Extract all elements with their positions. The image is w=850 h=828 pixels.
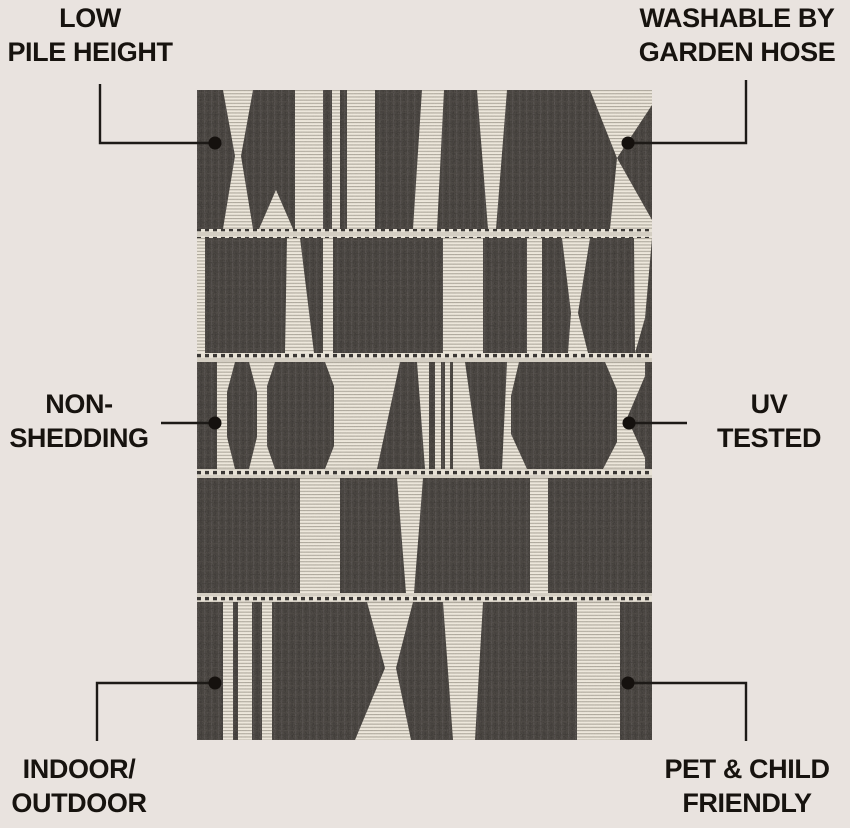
- label-line: WASHABLE BY: [624, 1, 850, 35]
- feature-label-washable-by-garden-hose: WASHABLE BY GARDEN HOSE: [624, 1, 850, 69]
- label-line: PILE HEIGHT: [0, 35, 180, 69]
- feature-label-indoor-outdoor: INDOOR/ OUTDOOR: [0, 752, 158, 820]
- feature-label-pet-child-friendly: PET & CHILD FRIENDLY: [644, 752, 850, 820]
- feature-label-uv-tested: UV TESTED: [688, 387, 850, 455]
- label-line: OUTDOOR: [0, 786, 158, 820]
- label-line: SHEDDING: [0, 421, 158, 455]
- label-line: GARDEN HOSE: [624, 35, 850, 69]
- label-line: NON-: [0, 387, 158, 421]
- feature-label-low-pile-height: LOW PILE HEIGHT: [0, 1, 180, 69]
- label-line: TESTED: [688, 421, 850, 455]
- rug-texture-grain: [197, 90, 652, 740]
- label-line: FRIENDLY: [644, 786, 850, 820]
- feature-label-non-shedding: NON- SHEDDING: [0, 387, 158, 455]
- label-line: INDOOR/: [0, 752, 158, 786]
- label-line: UV: [688, 387, 850, 421]
- rug-image: [197, 90, 652, 740]
- label-line: PET & CHILD: [644, 752, 850, 786]
- label-line: LOW: [0, 1, 180, 35]
- product-feature-infographic: LOW PILE HEIGHT WASHABLE BY GARDEN HOSE …: [0, 0, 850, 828]
